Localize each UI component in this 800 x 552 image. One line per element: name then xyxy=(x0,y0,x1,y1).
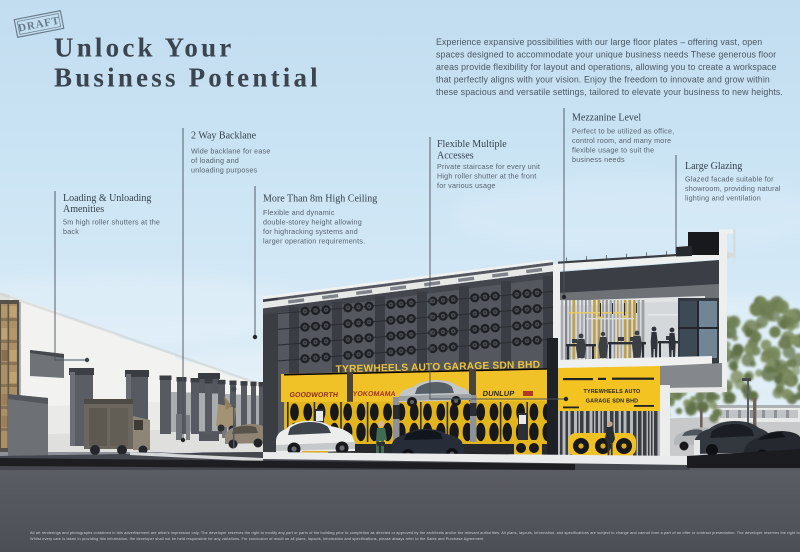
svg-text:All art renderings and photogr: All art renderings and photographs conta… xyxy=(30,531,800,535)
svg-text:Amenities: Amenities xyxy=(63,204,104,215)
svg-text:Business Potential: Business Potential xyxy=(54,63,321,93)
svg-text:that perfectly aligns with you: that perfectly aligns with your vision. … xyxy=(436,75,770,85)
svg-text:Large Glazing: Large Glazing xyxy=(685,161,742,172)
svg-text:Flexible and dynamic: Flexible and dynamic xyxy=(263,208,335,217)
svg-text:Experience expansive possibili: Experience expansive possibilities with … xyxy=(436,37,762,47)
svg-text:2 Way Backlane: 2 Way Backlane xyxy=(191,131,257,142)
svg-text:Flexible Multiple: Flexible Multiple xyxy=(437,139,507,150)
svg-text:GARAGE SDN BHD: GARAGE SDN BHD xyxy=(586,399,639,405)
svg-text:areas provide flexibility for: areas provide flexibility for layout and… xyxy=(436,62,777,72)
svg-text:Wide backlane for ease: Wide backlane for ease xyxy=(191,147,271,156)
svg-text:unloading purposes: unloading purposes xyxy=(191,166,258,175)
svg-text:High roller shutter at the fro: High roller shutter at the front xyxy=(437,172,536,181)
svg-text:Perfect to be utilized as offi: Perfect to be utilized as office, xyxy=(572,126,674,135)
svg-text:Loading & Unloading: Loading & Unloading xyxy=(63,193,151,204)
svg-text:for highracking systems and: for highracking systems and xyxy=(263,227,358,236)
svg-text:of loading and: of loading and xyxy=(191,156,239,165)
svg-text:TYREWHEELS AUTO: TYREWHEELS AUTO xyxy=(584,389,641,395)
svg-text:for various usage: for various usage xyxy=(437,181,496,190)
svg-text:larger operation requirements.: larger operation requirements. xyxy=(263,237,365,246)
svg-text:YOKOMAMA: YOKOMAMA xyxy=(352,391,396,398)
svg-text:double-storey height allowing: double-storey height allowing xyxy=(263,218,362,227)
svg-text:DUNLUP: DUNLUP xyxy=(482,389,515,398)
svg-text:More Than 8m High Ceiling: More Than 8m High Ceiling xyxy=(263,194,377,205)
svg-text:spaces designed to accommodate: spaces designed to accommodate your uniq… xyxy=(436,50,776,60)
svg-text:flexible usage to suit the: flexible usage to suit the xyxy=(572,145,654,154)
svg-text:5m high roller shutters at the: 5m high roller shutters at the xyxy=(63,218,160,227)
svg-text:Glazed facade suitable for: Glazed facade suitable for xyxy=(685,175,774,184)
svg-text:business needs: business needs xyxy=(572,155,625,164)
svg-text:control room, and many more: control room, and many more xyxy=(572,136,671,145)
svg-text:Mezzanine Level: Mezzanine Level xyxy=(572,113,641,124)
svg-text:Private staircase for every un: Private staircase for every unit xyxy=(437,162,540,171)
svg-text:back: back xyxy=(63,227,79,236)
svg-text:showroom, providing natural: showroom, providing natural xyxy=(685,184,781,193)
svg-text:lighting and ventilation: lighting and ventilation xyxy=(685,194,761,203)
svg-text:Unlock Your: Unlock Your xyxy=(54,33,234,63)
svg-text:GOODWORTH: GOODWORTH xyxy=(289,392,339,399)
svg-text:these spacious and versatile s: these spacious and versatile settings, t… xyxy=(436,87,783,97)
svg-text:Whilst every care is taken in: Whilst every care is taken in providing … xyxy=(30,537,484,541)
svg-text:Accesses: Accesses xyxy=(437,151,474,162)
